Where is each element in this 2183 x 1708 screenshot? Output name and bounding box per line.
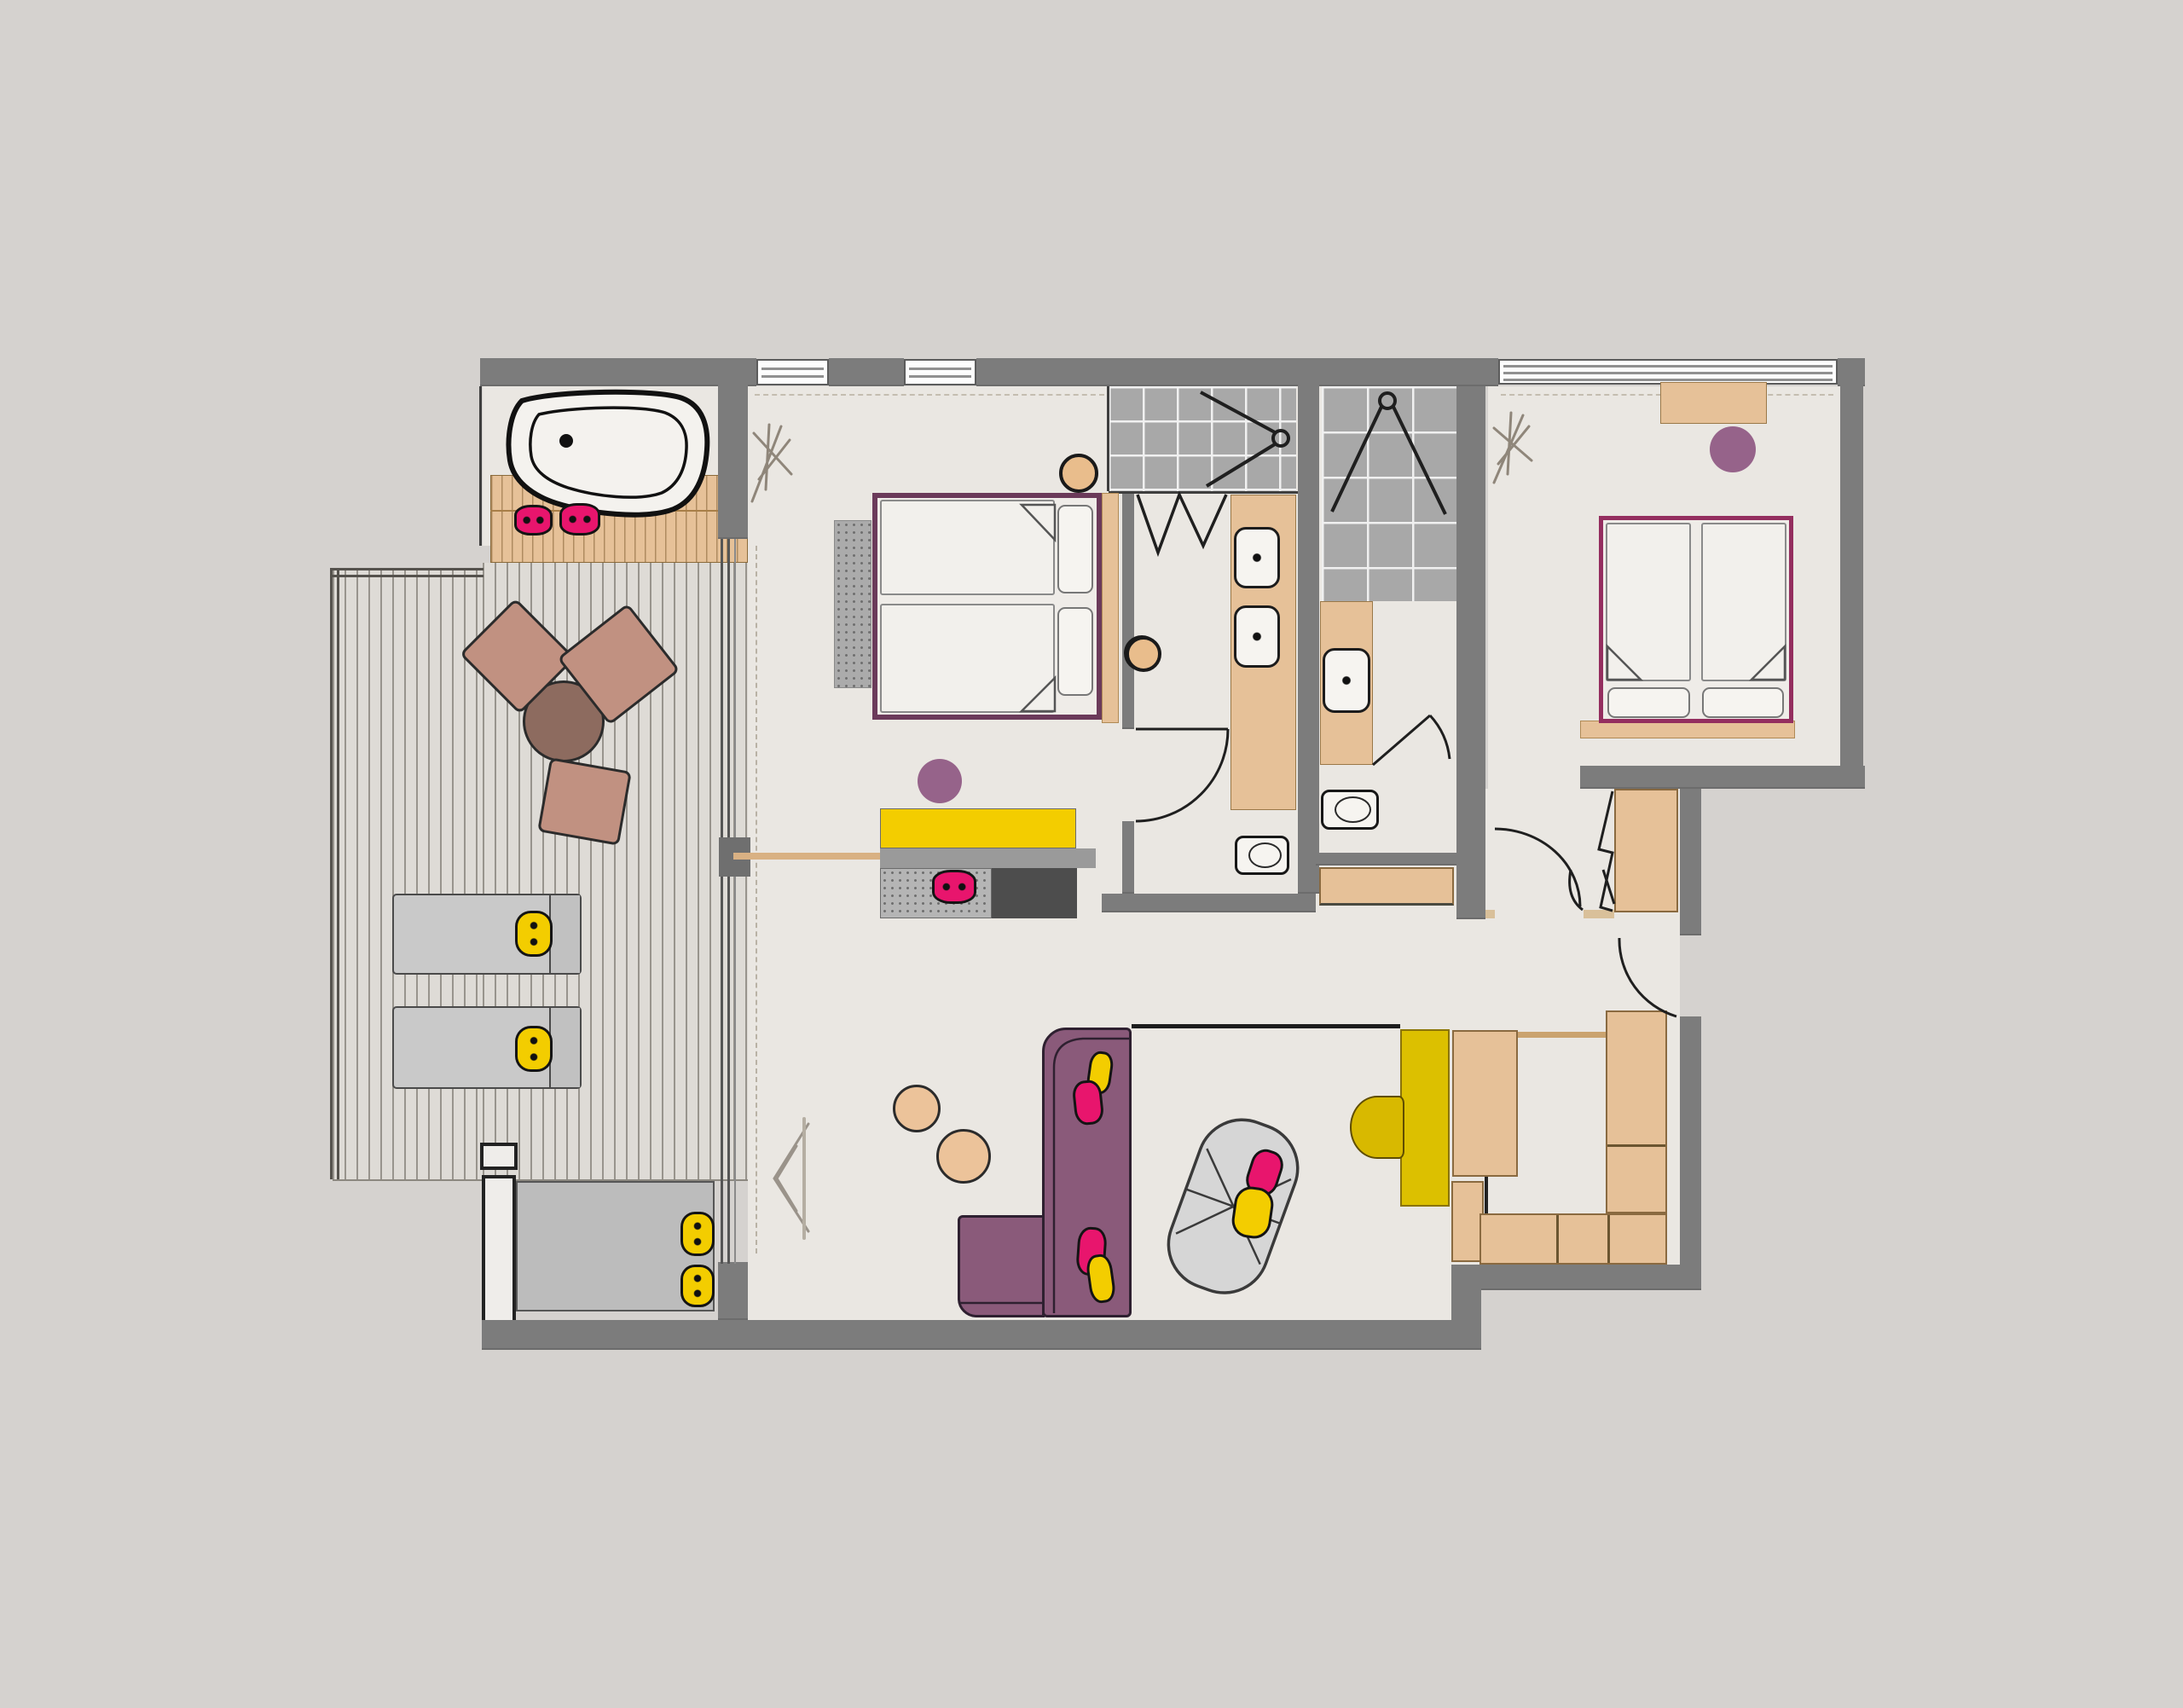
twin-pillow-1 (1607, 687, 1690, 718)
facade-glass-line3 (734, 539, 736, 1264)
facade-glass-line1 (721, 539, 723, 1264)
twin-mattress-2 (1701, 523, 1786, 681)
wall-bathrooms-center (1298, 358, 1319, 894)
wall-top-mid2 (976, 358, 1498, 386)
bed2-foot-shelf (1580, 721, 1795, 738)
toilet-bowl (1335, 796, 1371, 823)
wall-wc2-bottom (1316, 853, 1456, 866)
bathroom1-stool (1126, 636, 1161, 672)
wall-facade-stub (718, 1262, 748, 1320)
cabinet-divider (1607, 1144, 1665, 1147)
lounger-headrest (549, 1008, 580, 1087)
bath-bench-pillow-2 (559, 503, 600, 536)
media-bench-pillow (932, 870, 976, 904)
wall-top-niche (480, 358, 756, 386)
wall-right-lower (1680, 1016, 1701, 1290)
bedroom2-door-floor (1488, 766, 1582, 789)
balcony-planter-tall (482, 1175, 516, 1328)
sun-lounger-1 (392, 894, 582, 975)
vanity1-sink-2 (1234, 605, 1280, 668)
media-sideboard-yellow (880, 808, 1076, 848)
window-band-bedroom2 (1498, 359, 1838, 385)
wall-bottom-main (482, 1320, 1451, 1350)
cabinet-divider (1556, 1215, 1559, 1263)
balcony-planter-small (480, 1143, 518, 1170)
wall-bedroom2-right (1840, 358, 1863, 789)
toilet-2 (1321, 790, 1379, 830)
dressing-divider-line (1485, 1177, 1488, 1215)
media-base (880, 848, 1096, 868)
dressing-wardrobe-right (1606, 1010, 1667, 1213)
hanging-rail (1518, 1032, 1607, 1038)
window-master-2 (904, 359, 976, 385)
window-glazing-line (909, 375, 971, 378)
window-glazing-line (761, 375, 824, 378)
threshold-hall-2 (1485, 910, 1495, 918)
curtain-track-master (755, 394, 1104, 396)
window-master-1 (756, 359, 829, 385)
wall-bath2-bedroom2 (1456, 386, 1485, 919)
wall-bottom-step (1451, 1265, 1481, 1350)
curtain-track-living (756, 546, 757, 1253)
vanity1-sink-1 (1234, 527, 1280, 588)
sofa-horizontal (958, 1215, 1045, 1317)
twin-mattress-1 (1606, 523, 1691, 681)
hall-cabinet (1319, 867, 1454, 906)
window-glazing-line (909, 368, 971, 370)
mattress-1 (880, 500, 1055, 595)
glass-niche-left (479, 386, 482, 546)
bench-pillow-2 (680, 1265, 715, 1307)
bench-pillow-1 (680, 1212, 715, 1256)
fireplace-cabinet (992, 868, 1077, 918)
wall-bath1-bottom (1102, 894, 1316, 912)
partition-line (1132, 1024, 1400, 1028)
window-glazing-line (1503, 365, 1833, 368)
bed-pillow-1 (1057, 505, 1093, 593)
desk-chair (1350, 1096, 1404, 1159)
cabinet-divider (1607, 1215, 1610, 1263)
threshold-rod (733, 853, 880, 860)
balcony-railing-left (330, 568, 333, 1179)
toilet-1 (1235, 836, 1289, 875)
desk (1400, 1029, 1450, 1207)
lounger-pillow-2 (515, 1026, 553, 1072)
wall-bath1-left-lower (1122, 821, 1134, 894)
window-glazing-line (1503, 379, 1833, 381)
balcony-railing-left-inner (337, 568, 339, 1179)
pouf-1 (893, 1085, 941, 1132)
bedside-rug (834, 520, 871, 688)
bedroom2-stool-purple (1710, 426, 1756, 472)
pouf-2 (936, 1129, 991, 1184)
dressing-wardrobe-bottom (1479, 1213, 1667, 1265)
balcony-railing-top (330, 568, 484, 570)
wall-bedroom2-bottom (1580, 766, 1865, 789)
balcony-chair-3 (537, 757, 632, 846)
wall-niche-bedroom (718, 358, 748, 539)
sun-lounger-2 (392, 1006, 582, 1089)
wall-right-upper (1680, 789, 1701, 935)
wall-bath1-left-upper (1122, 493, 1134, 729)
bed-headboard-shelf (1102, 493, 1119, 723)
bedroom2-sideboard (1660, 382, 1767, 424)
balcony-deck (333, 570, 483, 1181)
floor-plan (0, 0, 2183, 1708)
wall-top-mid1 (829, 358, 904, 386)
hall-wardrobe (1614, 789, 1678, 912)
glass-shower1-bottom (1109, 491, 1298, 494)
vanity2-sink (1323, 648, 1370, 713)
shower2-tiles (1322, 386, 1456, 601)
window-glazing-line (761, 368, 824, 370)
wall-bottom-right (1481, 1265, 1699, 1290)
glass-shower1-left (1107, 386, 1109, 491)
bed-pillow-2 (1057, 607, 1093, 696)
dressing-wardrobe-left (1452, 1030, 1518, 1177)
toilet-bowl (1248, 842, 1282, 868)
bedside-stool-1 (1059, 454, 1098, 493)
lounger-pillow-1 (515, 911, 553, 957)
threshold-hall-1 (1584, 910, 1614, 918)
stool-purple-living (918, 759, 962, 803)
lounger-headrest (549, 895, 580, 973)
facade-glass-line2 (727, 539, 730, 1264)
shower1-tiles (1109, 386, 1296, 491)
mattress-2 (880, 604, 1055, 713)
window-glazing-line (1503, 372, 1833, 374)
twin-pillow-2 (1702, 687, 1784, 718)
balcony-railing-top-inner (330, 575, 484, 577)
bath-bench-pillow-1 (514, 505, 553, 536)
